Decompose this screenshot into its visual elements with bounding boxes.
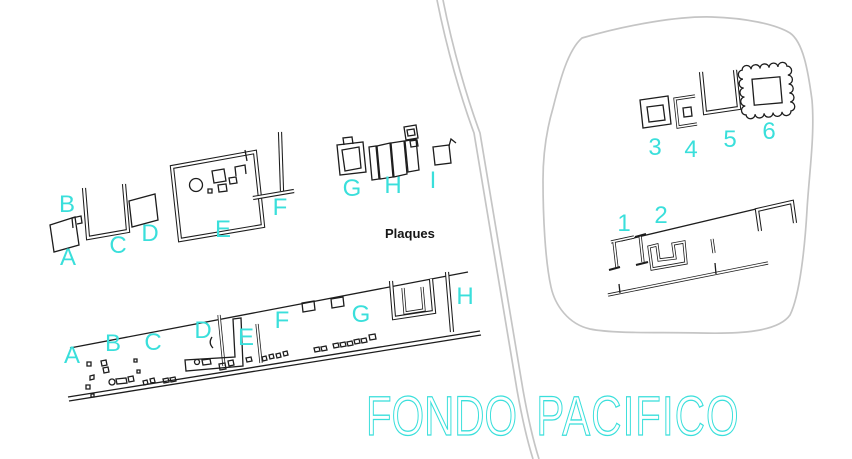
pacifico-site-structures [608,62,795,295]
label-upper-i: I [430,167,437,194]
label-site-4: 4 [684,136,697,163]
site-plan: A B C D E F G H I A B C D E F G H 1 2 3 … [0,0,852,459]
structure-upper-c [84,184,128,238]
label-lower-d: D [194,317,211,344]
label-lower-c: C [144,329,161,356]
label-lower-h: H [456,283,473,310]
label-lower-a: A [64,342,80,369]
label-site-6: 6 [762,118,775,145]
label-upper-a: A [60,244,76,271]
label-upper-g: G [343,175,362,202]
structure-upper-i [433,139,456,165]
label-upper-e: E [215,216,231,243]
label-upper-b: B [59,191,75,218]
structure-upper-g [337,137,366,175]
region-title-pacifico: PACIFICO [536,385,739,447]
site-boundary-outline [543,17,813,333]
label-lower-f: F [275,307,290,334]
label-site-2: 2 [654,202,667,229]
structure-1 [609,234,648,270]
label-site-1: 1 [617,210,630,237]
label-lower-g: G [352,301,371,328]
long-bottom-wall [608,263,768,295]
label-upper-d: D [141,220,158,247]
pacifico-site-labels: 1 2 3 4 5 6 [617,118,775,237]
structure-4 [675,96,697,127]
label-lower-e: E [238,324,254,351]
label-lower-b: B [105,330,121,357]
lower-site-structures [68,272,481,401]
structure-6 [738,62,796,120]
region-title-fondo: FONDO [366,385,517,447]
label-upper-f: F [273,194,288,221]
site-map-page: A B C D E F G H I A B C D E F G H 1 2 3 … [0,0,852,459]
label-site-3: 3 [648,134,661,161]
plaques-label: Plaques [385,226,435,241]
label-upper-h: H [384,172,401,199]
label-site-5: 5 [723,126,736,153]
structure-3 [640,96,671,128]
label-upper-c: C [109,232,126,259]
region-title: FONDO PACIFICO [366,385,740,447]
structure-5 [701,70,739,113]
upper-site-labels: A B C D E F G H I [59,167,436,271]
strip-top-edge [70,272,468,348]
